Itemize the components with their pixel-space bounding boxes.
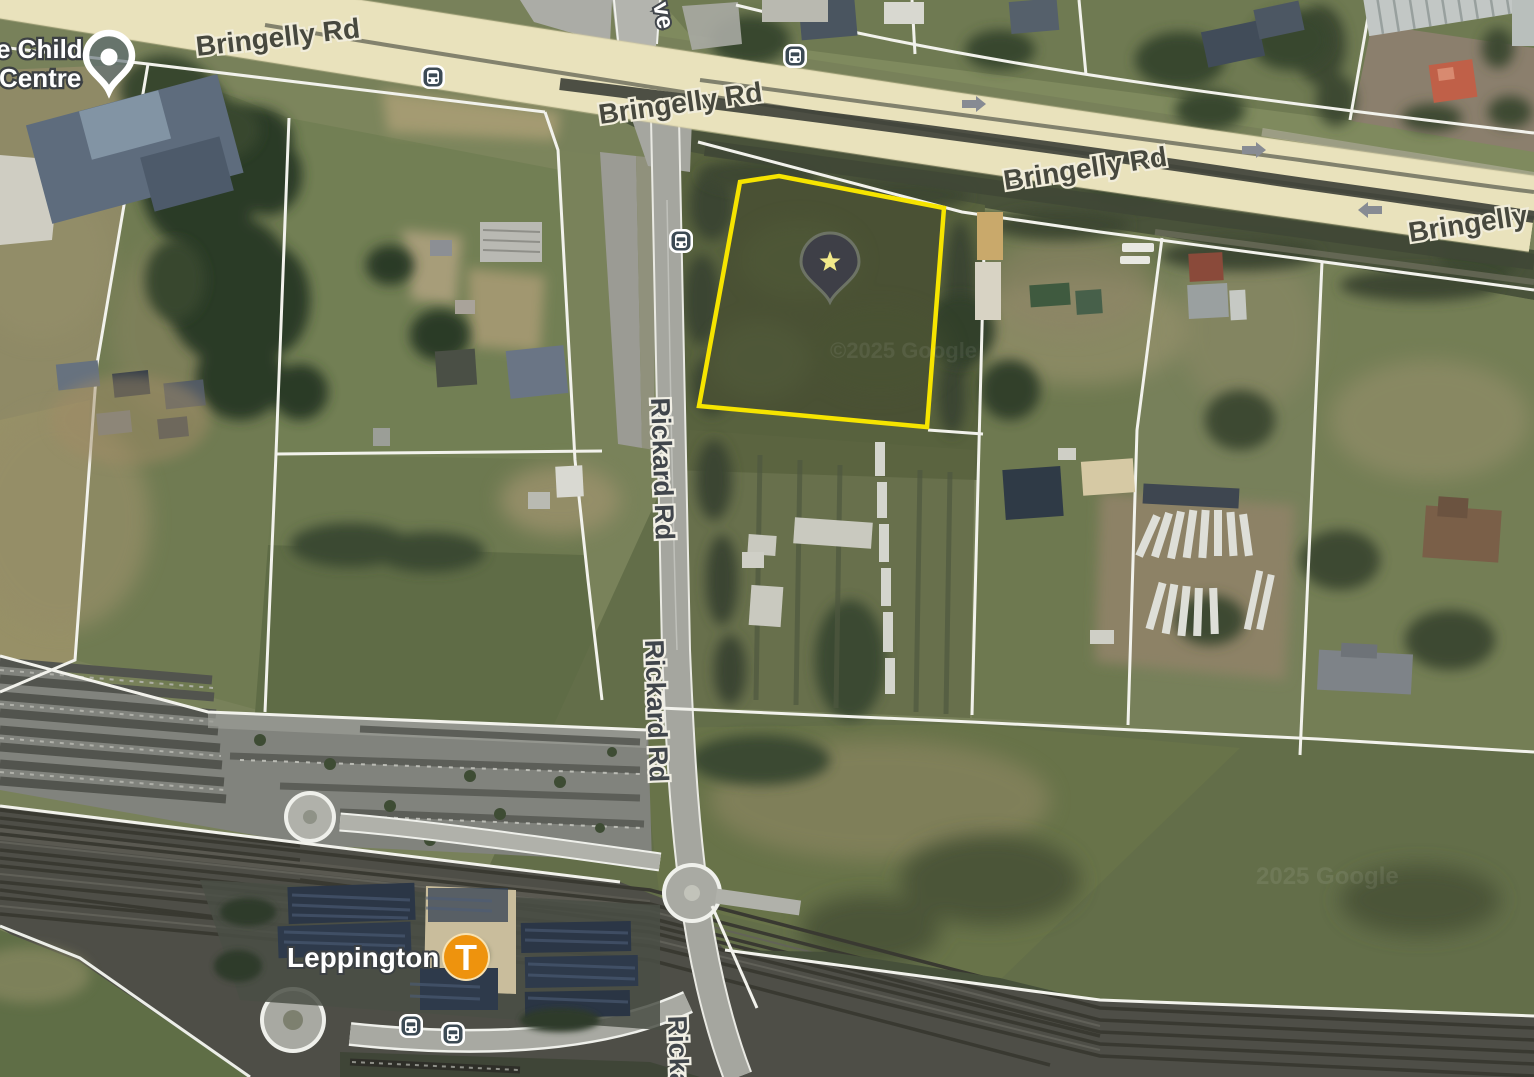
svg-text:T: T <box>455 937 477 978</box>
svg-text:e Child: e Child <box>0 34 83 64</box>
svg-text:ve: ve <box>647 0 679 31</box>
svg-text:Rickard Rd: Rickard Rd <box>645 397 680 541</box>
svg-text:Leppington: Leppington <box>287 942 439 973</box>
svg-text:©2025 Google: ©2025 Google <box>830 338 977 363</box>
svg-text:Centre: Centre <box>0 63 81 93</box>
svg-text:Rickard Rd: Rickard Rd <box>639 639 674 783</box>
svg-text:2025 Google: 2025 Google <box>1256 863 1399 890</box>
svg-text:Rickard Rd: Rickard Rd <box>662 1015 697 1077</box>
